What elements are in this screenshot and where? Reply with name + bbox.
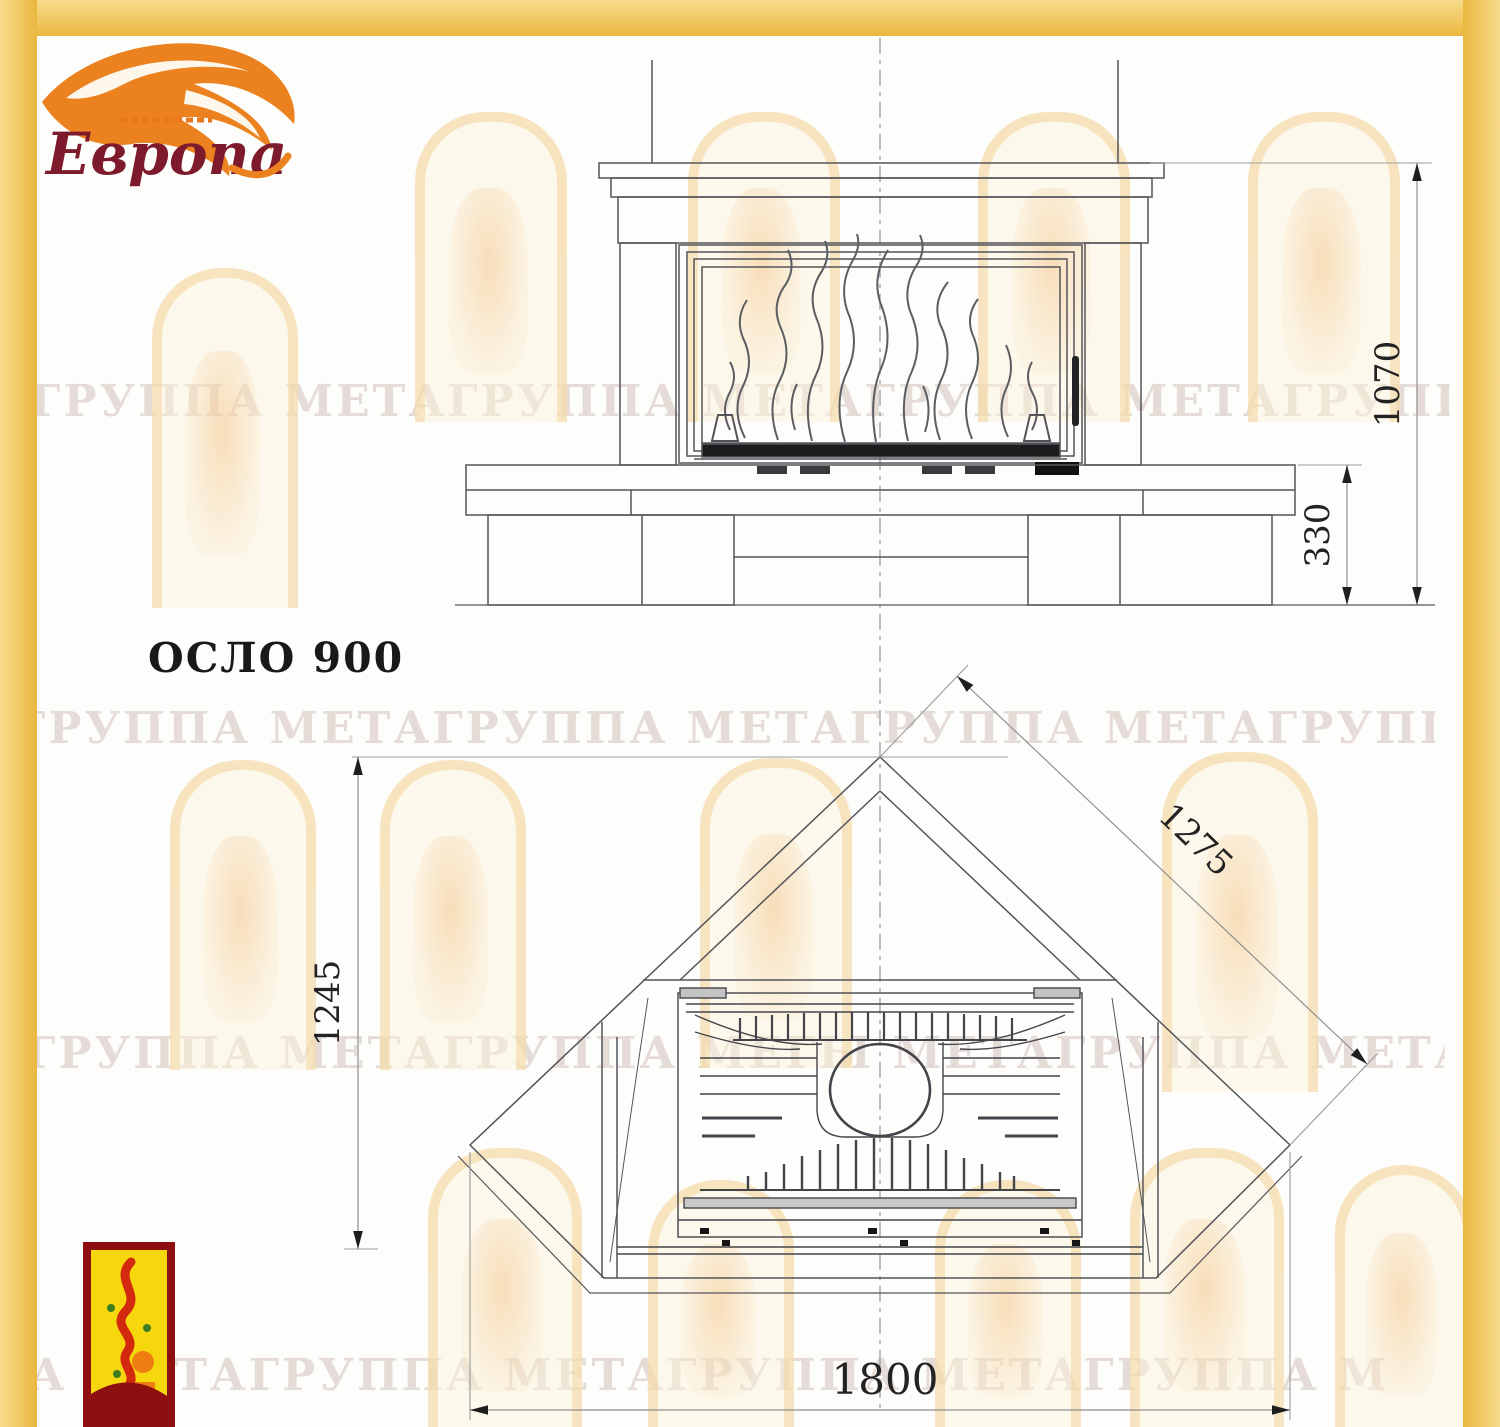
flames xyxy=(725,234,1037,442)
mantel-step xyxy=(611,178,1152,197)
mantel-crown xyxy=(599,163,1164,178)
dim-label-330: 330 xyxy=(1298,503,1338,568)
right-column xyxy=(1085,243,1141,465)
dimension-hearth-height: 330 xyxy=(1298,465,1362,605)
product-label: ОСЛО 900 xyxy=(148,634,404,682)
vents xyxy=(757,462,1079,475)
mantel-frieze xyxy=(618,197,1148,243)
firebox-glass xyxy=(702,267,1060,443)
technical-drawing: 1070 330 xyxy=(0,0,1500,1427)
page: ГРУППА МЕТАГРУППА МЕТАГРУППА МЕТАГРУППА … xyxy=(0,0,1500,1427)
corner-stamp-icon xyxy=(83,1242,175,1427)
dim-label-1070: 1070 xyxy=(1368,341,1408,428)
base-leg-left xyxy=(488,515,734,605)
dimension-plan-depth: 1245 xyxy=(308,757,1008,1249)
door-handle xyxy=(1072,356,1079,426)
front-view xyxy=(455,60,1435,605)
dim-label-1245: 1245 xyxy=(308,960,348,1047)
frame-right xyxy=(1463,0,1500,1427)
base-leg-right xyxy=(1028,515,1272,605)
frame-left xyxy=(0,0,37,1427)
dimension-front-total-height: 1070 xyxy=(1150,163,1432,605)
dim-label-1800: 1800 xyxy=(832,1355,939,1404)
left-column xyxy=(620,243,676,465)
brand-logo: Европа xyxy=(36,28,308,196)
grate-band xyxy=(702,444,1060,457)
dimension-plan-side: 1275 xyxy=(880,665,1378,1145)
